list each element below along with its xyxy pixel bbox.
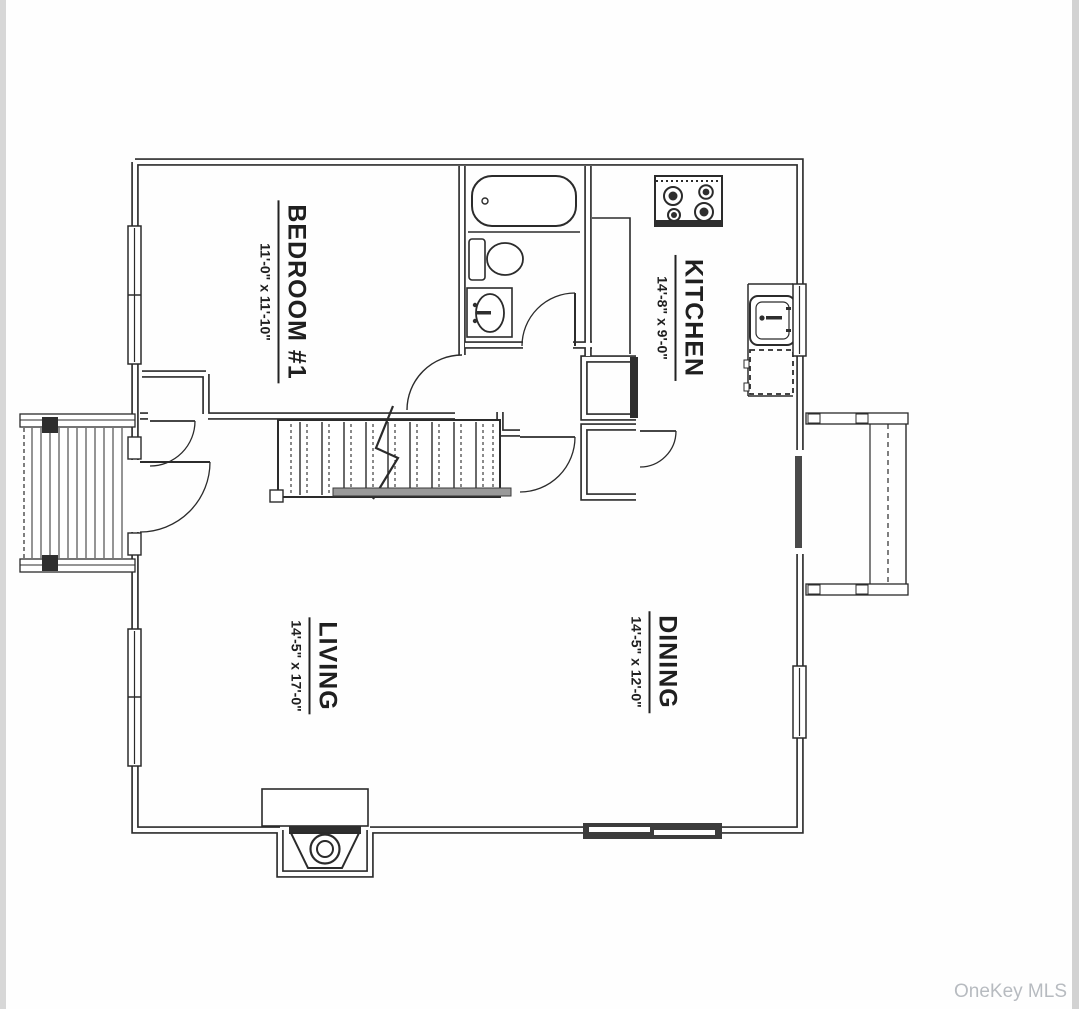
bedroom-door (407, 355, 462, 410)
kitchen-title: KITCHEN (675, 255, 708, 381)
living-dims: 14'-5" x 17'-0" (289, 617, 305, 714)
dining-window (793, 666, 806, 738)
kitchen-sink (750, 296, 795, 345)
kitchen-dims: 14'-8" x 9'-0" (655, 255, 671, 381)
right-deck (806, 413, 908, 595)
handrail (333, 488, 511, 496)
room-label-bedroom: BEDROOM #1 11'-0" x 11'-10" (258, 200, 311, 383)
room-label-living: LIVING 14'-5" x 17'-0" (289, 617, 342, 714)
room-label-dining: DINING 14'-5" x 12'-0" (629, 611, 682, 713)
bedroom-closet (150, 421, 195, 466)
entry-door (128, 437, 210, 555)
newel-post (270, 490, 283, 502)
staircase (270, 406, 511, 502)
dishwasher (750, 350, 793, 394)
bedroom-dims: 11'-0" x 11'-10" (258, 200, 274, 383)
kitchen-window (793, 284, 806, 356)
bathroom-door (522, 293, 575, 346)
hall-dining-door (520, 437, 575, 492)
bedroom-title: BEDROOM #1 (278, 200, 311, 383)
kitchen-counter (592, 218, 630, 354)
left-deck-stairs (20, 414, 135, 572)
deck-post (42, 417, 58, 433)
floor-plan-page: BEDROOM #1 11'-0" x 11'-10" KITCHEN 14'-… (0, 0, 1079, 1009)
sliding-glass-door (583, 823, 722, 839)
stove (655, 176, 722, 227)
closet-bifold-door (630, 357, 638, 418)
bathroom-sink (467, 288, 512, 337)
dining-title: DINING (649, 611, 682, 713)
living-room-window (128, 629, 141, 766)
dining-dims: 14'-5" x 12'-0" (629, 611, 645, 713)
deck-post (42, 555, 58, 571)
tub-drain (482, 198, 488, 204)
room-label-kitchen: KITCHEN 14'-8" x 9'-0" (655, 255, 708, 381)
closet-door (640, 431, 676, 467)
bedroom-window (128, 226, 141, 364)
watermark: OneKey MLS (954, 981, 1067, 1003)
deck-door (791, 450, 808, 554)
bathroom-fixtures (467, 176, 580, 346)
living-title: LIVING (309, 617, 342, 714)
hearth (262, 789, 368, 826)
floor-plan (0, 0, 1079, 1009)
toilet (469, 239, 523, 280)
